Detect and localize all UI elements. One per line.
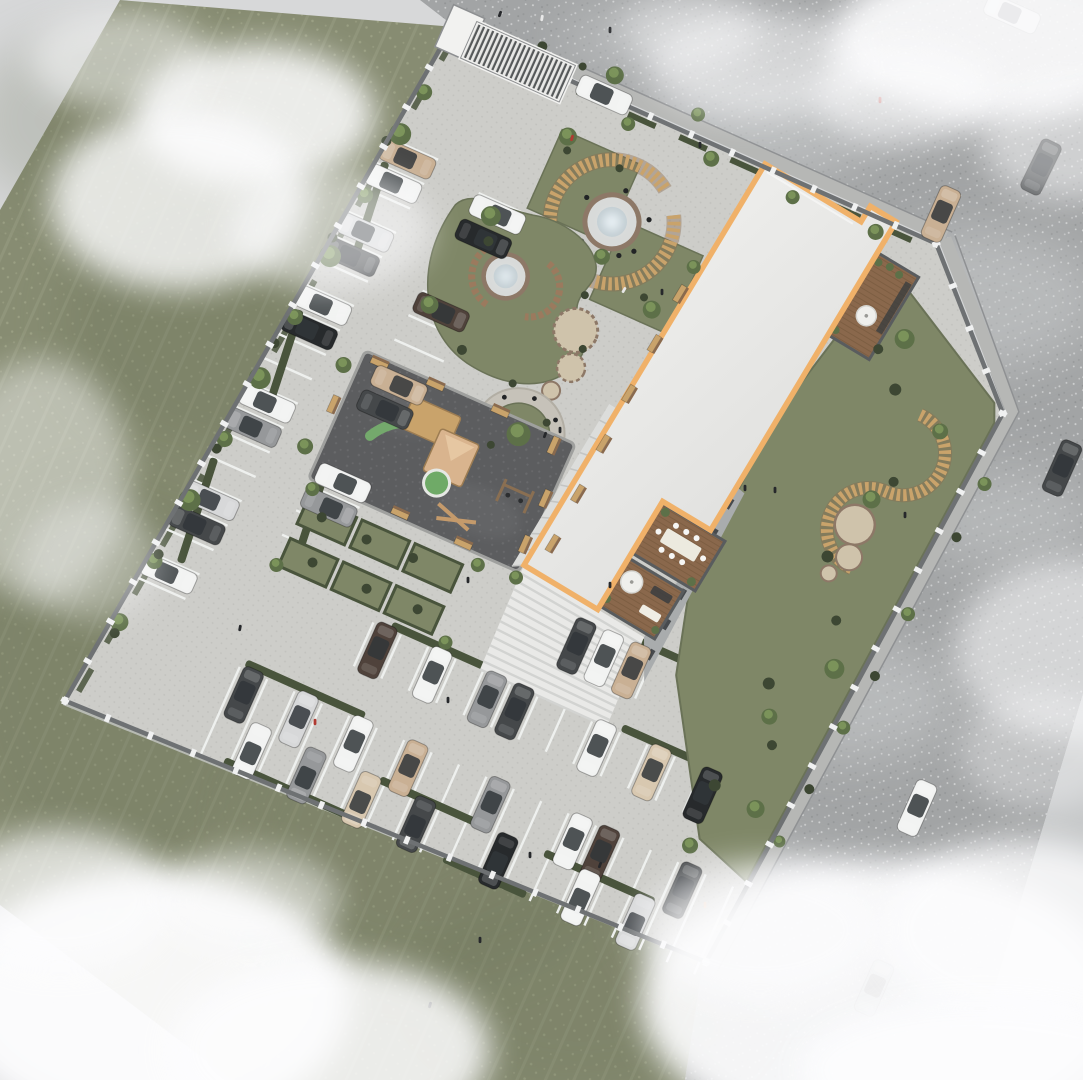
pedestrian — [904, 512, 907, 518]
pedestrian — [559, 427, 562, 433]
pedestrian — [479, 937, 482, 943]
cloud — [160, 850, 340, 950]
pedestrian — [609, 582, 612, 588]
pedestrian — [447, 697, 450, 703]
pedestrian — [661, 289, 664, 295]
pedestrian — [774, 487, 777, 493]
cloud — [640, 860, 880, 1000]
pedestrian — [609, 27, 612, 33]
cloud — [20, 500, 160, 620]
pedestrian — [529, 852, 532, 858]
site-plan-canvas — [0, 0, 1083, 1080]
pedestrian — [699, 142, 702, 148]
pedestrian — [744, 485, 747, 491]
site-plan-render — [0, 0, 1083, 1080]
cloud — [230, 170, 430, 290]
pedestrian — [314, 719, 317, 725]
pedestrian — [467, 577, 470, 583]
cloud — [30, 10, 210, 110]
